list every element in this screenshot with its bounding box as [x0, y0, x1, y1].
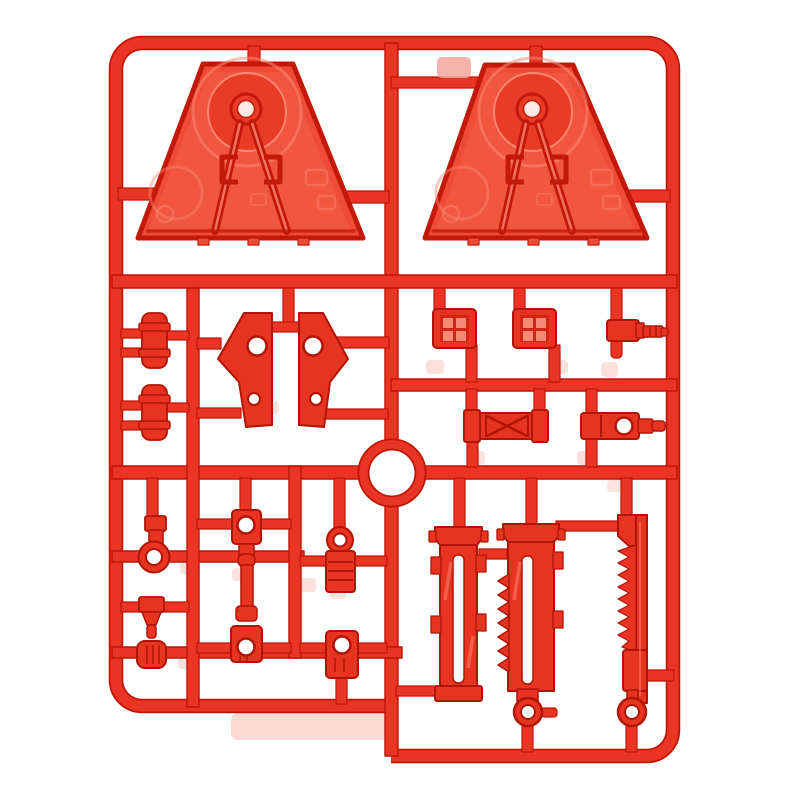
- parts-mid-right-shape-10: [523, 331, 533, 341]
- gates-and-stubs-shape-4: [391, 77, 481, 88]
- gates-and-stubs-shape-28: [586, 436, 597, 467]
- parts-mid-left-shape-5: [139, 421, 170, 429]
- gates-and-stubs-shape-15: [336, 337, 389, 348]
- parts-mid-right-shape-15: [661, 328, 668, 336]
- part-trapezoid-left-shape-19: [248, 238, 259, 245]
- parts-bottom-left-shape-28: [334, 637, 351, 654]
- parts-bottom-right-shape-30: [625, 705, 639, 719]
- pill-part-2: [142, 385, 167, 440]
- pill-part-1: [142, 313, 167, 368]
- parts-bottom-left-shape-5: [142, 612, 161, 625]
- reflection-ghosts-shape-13: [607, 480, 622, 492]
- gates-and-stubs-shape-40: [300, 643, 329, 653]
- gates-and-stubs-shape-22: [466, 345, 477, 382]
- blade-part-1-cap: [435, 527, 482, 546]
- parts-bottom-left-shape-16: [236, 606, 257, 621]
- parts-mid-right-shape-4: [443, 331, 453, 341]
- gates-and-stubs-shape-31: [334, 478, 345, 531]
- gates-and-stubs-shape-52: [541, 708, 557, 717]
- parts-bottom-right-shape-2: [481, 531, 488, 542]
- parts-mid-left-shape-10: [304, 337, 323, 356]
- parts-bottom-left-shape-22: [334, 534, 347, 547]
- parts-bottom-left-shape-3: [146, 549, 162, 565]
- parts-mid-left-shape-11: [310, 393, 322, 405]
- gate-tag: [437, 57, 471, 78]
- pink-gate-tab: [437, 57, 471, 78]
- gates-and-stubs-shape-3: [345, 191, 389, 203]
- trapezoid-right-hub-hole: [524, 101, 541, 118]
- parts-mid-right-shape-29: [652, 421, 665, 431]
- parts-mid-right-shape-20: [532, 410, 548, 442]
- parts-mid-right-shape-3: [456, 318, 466, 328]
- part-trapezoid-left-shape-18: [198, 238, 209, 245]
- gates-and-stubs-shape-26: [586, 389, 597, 416]
- reflection-ghosts-shape-3: [601, 362, 618, 377]
- parts-bottom-right-shape-9: [435, 686, 482, 701]
- link-shaft: [241, 565, 253, 610]
- part-trapezoid-left-shape-20: [298, 238, 309, 245]
- gates-and-stubs-shape-32: [197, 519, 235, 529]
- parts-bottom-right-shape-13: [497, 529, 504, 540]
- gates-and-stubs-shape-43: [454, 478, 465, 530]
- parts-bottom-right: [429, 515, 647, 726]
- parts-mid-right-shape-2: [443, 318, 453, 328]
- gates-and-stubs-shape-30: [240, 478, 251, 513]
- gates-and-stubs-shape-23: [549, 345, 560, 382]
- parts-mid-left-shape-7: [248, 337, 267, 356]
- parts-mid-left-shape-1: [139, 323, 170, 331]
- gates-and-stubs-shape-14: [197, 338, 221, 349]
- gates-and-stubs-shape-49: [646, 670, 674, 681]
- parts-mid-left-shape-8: [248, 393, 260, 405]
- gates-and-stubs-shape-44: [526, 478, 537, 527]
- blade-part-2-cap: [503, 524, 559, 543]
- peg-part-block: [607, 320, 639, 341]
- parts-bottom-right-shape-6: [476, 555, 486, 572]
- gates-and-stubs-shape-33: [259, 519, 291, 529]
- trapezoid-left-hub-hole: [238, 101, 255, 118]
- reflection-band: [231, 713, 389, 740]
- saw-part-teeth: [618, 545, 636, 652]
- gates-and-stubs-shape-16: [197, 408, 241, 418]
- parts-bottom-right-shape-16: [553, 552, 563, 569]
- parts-mid-right-shape-19: [464, 410, 480, 442]
- parts-mid-right-shape-11: [536, 331, 546, 341]
- gates-and-stubs-shape-48: [396, 686, 439, 696]
- parts-bottom-right-shape-22: [521, 705, 535, 719]
- part-trapezoid-right-shape-18: [468, 238, 479, 245]
- parts-bottom-right-shape-5: [431, 616, 441, 633]
- reflection-ghosts-shape-1: [426, 360, 444, 374]
- parts-mid-right-shape-8: [523, 318, 533, 328]
- part-trapezoid-right-shape-19: [528, 238, 539, 245]
- runner-mid-divider: [112, 275, 677, 288]
- sprue-photo-svg: [0, 0, 800, 800]
- product-photo: [0, 0, 800, 800]
- gates-and-stubs-shape-20: [611, 288, 622, 323]
- parts-bottom-right-shape-4: [431, 557, 441, 574]
- parts-bottom-left-shape-6: [147, 625, 156, 638]
- runner-v2: [289, 466, 301, 658]
- parts-bottom-right-shape-1: [429, 531, 436, 542]
- gates-and-stubs-shape-50: [522, 723, 533, 752]
- parts-bottom-right-shape-7: [476, 614, 486, 631]
- gates-and-stubs-shape-39: [261, 643, 291, 653]
- blade-part-2-teeth: [498, 574, 509, 672]
- parts-mid-right-shape-28: [638, 419, 653, 433]
- parts-mid-right-shape-9: [536, 318, 546, 328]
- parts-bottom-left-shape-18: [238, 639, 255, 656]
- parts-bottom-right-shape-17: [553, 611, 563, 628]
- blade-part-2-slot: [522, 556, 533, 684]
- parts-mid-right-shape-14: [643, 326, 663, 337]
- gates-and-stubs-shape-45: [621, 478, 632, 519]
- barrel-part: [137, 641, 166, 668]
- funnel-part: [139, 597, 164, 612]
- parts-mid-left-shape-4: [139, 395, 170, 403]
- gates-and-stubs-shape-41: [356, 643, 387, 653]
- donut-part-block: [145, 516, 166, 531]
- gates-and-stubs-shape-17: [320, 409, 388, 419]
- gates-and-stubs-shape-35: [355, 556, 387, 566]
- parts-bottom-left-shape-12: [238, 517, 255, 534]
- parts-mid-right-shape-5: [456, 331, 466, 341]
- gates-and-stubs-shape-34: [300, 556, 329, 566]
- gates-and-stubs-shape-51: [626, 723, 637, 752]
- part-trapezoid-left: [138, 58, 363, 245]
- parts-bottom-right-shape-14: [558, 529, 565, 540]
- parts-bottom-right-shape-27: [623, 650, 647, 691]
- gates-and-stubs-shape-38: [197, 643, 234, 653]
- parts-mid-left-shape-2: [139, 349, 170, 357]
- gates-and-stubs-shape-37: [162, 602, 189, 612]
- blade-part-1-slot: [453, 555, 464, 683]
- center-ring-node: [364, 445, 421, 502]
- part-trapezoid-right-shape-20: [588, 238, 599, 245]
- parts-mid-right-shape-27: [616, 418, 633, 435]
- gates-and-stubs-shape-29: [147, 478, 158, 518]
